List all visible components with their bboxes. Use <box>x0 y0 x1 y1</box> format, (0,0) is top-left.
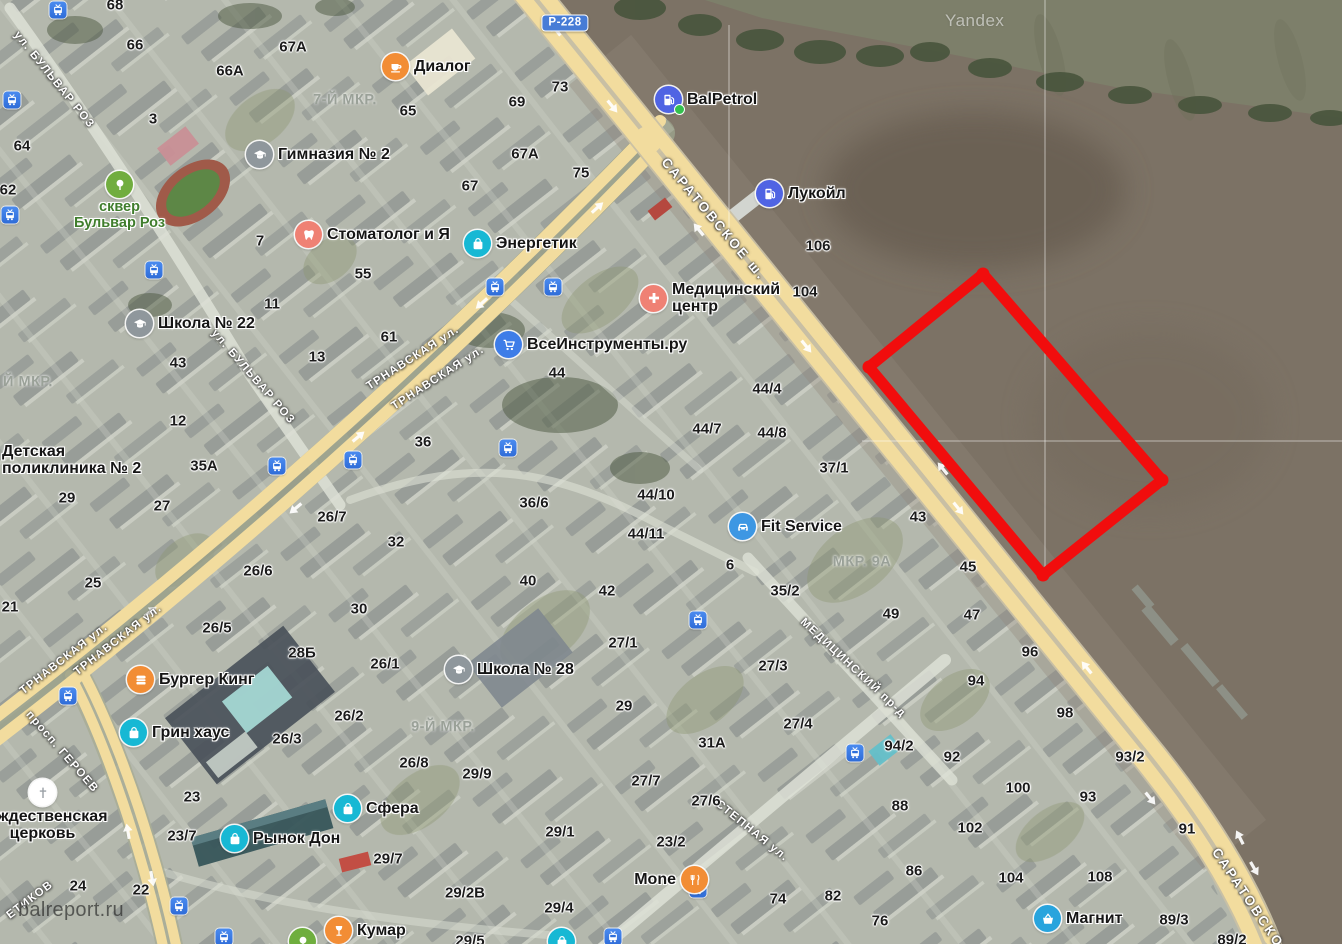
building-number: 29/1 <box>545 824 574 841</box>
poi-shop-unnamed[interactable] <box>548 928 575 944</box>
building-number: 62 <box>0 182 16 199</box>
building-number: 36 <box>415 434 432 451</box>
building-number: 27/1 <box>608 635 637 652</box>
building-number: 44/11 <box>628 526 665 543</box>
poi-fit-service[interactable]: Fit Service <box>729 513 842 540</box>
building-number: 29/9 <box>462 766 491 783</box>
poi-balpetrol[interactable]: BalPetrol <box>655 86 757 113</box>
poi-label: BalPetrol <box>687 91 757 108</box>
shopping-bag-icon[interactable] <box>334 795 361 822</box>
building-number: 29/4 <box>544 900 573 917</box>
building-number: 74 <box>770 891 787 908</box>
building-number: 55 <box>355 266 372 283</box>
building-number: 35/2 <box>770 583 799 600</box>
building-number: 65 <box>400 103 417 120</box>
poi-label: Рынок Дон <box>253 830 340 847</box>
poi-vseinstrumenty[interactable]: ВсеИнструменты.ру <box>495 331 687 358</box>
poi-dialog[interactable]: Диалог <box>382 53 471 80</box>
building-number: 25 <box>85 575 102 592</box>
building-number: 94 <box>968 673 985 690</box>
district-label: Й МКР. <box>3 374 53 390</box>
building-number: 91 <box>1179 821 1196 838</box>
route-badge: Р-228 <box>541 15 588 32</box>
building-number: 88 <box>892 798 909 815</box>
poi-label: Кумар <box>357 922 406 939</box>
building-number: 27/4 <box>783 716 812 733</box>
building-number: 28Б <box>288 645 315 662</box>
poi-park-bulvar-roz[interactable]: скверБульвар Роз <box>106 171 133 231</box>
building-number: 29/2В <box>445 885 485 902</box>
district-label: 7-Й МКР. <box>313 92 377 108</box>
building-number: 44/8 <box>757 425 786 442</box>
building-number: 36/6 <box>519 495 548 512</box>
building-number: 102 <box>957 820 982 837</box>
building-number: 21 <box>2 599 19 616</box>
building-number: 11 <box>264 296 280 313</box>
poi-school-22[interactable]: Школа № 22 <box>126 310 255 337</box>
shopping-bag-icon[interactable] <box>221 825 248 852</box>
building-number: 27 <box>154 498 171 515</box>
watermark-balreport: balreport.ru <box>18 899 124 922</box>
basket-icon[interactable] <box>1034 905 1061 932</box>
poi-med-center[interactable]: Медицинскийцентр <box>640 281 780 316</box>
poi-label: скверБульвар Роз <box>35 200 205 231</box>
building-number: 24 <box>70 878 87 895</box>
building-number: 29/7 <box>373 851 402 868</box>
building-number: 13 <box>309 349 326 366</box>
building-number: 44 <box>549 365 566 382</box>
poi-church[interactable]: Рождественскаяцерковь <box>29 779 56 843</box>
building-number: 23/7 <box>167 828 196 845</box>
building-number: 6 <box>726 557 734 574</box>
poi-sfera[interactable]: Сфера <box>334 795 419 822</box>
wine-glass-icon[interactable] <box>325 917 352 944</box>
cafe-icon[interactable] <box>382 53 409 80</box>
poi-label: Fit Service <box>761 518 842 535</box>
building-number: 44/7 <box>692 421 721 438</box>
graduation-cap-icon[interactable] <box>246 141 273 168</box>
building-number: 49 <box>883 606 900 623</box>
building-number: 61 <box>381 329 398 346</box>
shopping-bag-icon[interactable] <box>548 928 575 944</box>
building-number: 37/1 <box>819 460 848 477</box>
building-number: 7 <box>256 233 264 250</box>
transit-stop-icon[interactable] <box>60 688 77 705</box>
building-number: 42 <box>599 583 616 600</box>
building-number: 108 <box>1087 869 1112 886</box>
tree-icon[interactable] <box>106 171 133 198</box>
car-icon[interactable] <box>729 513 756 540</box>
building-number: 26/6 <box>243 563 272 580</box>
poi-stomatolog[interactable]: Стоматолог и Я <box>295 221 450 248</box>
building-number: 44/4 <box>752 381 781 398</box>
poi-label: Гимназия № 2 <box>278 146 390 163</box>
building-number: 92 <box>944 749 961 766</box>
fuel-icon[interactable] <box>756 180 783 207</box>
district-label: МКР. 9А <box>833 554 892 570</box>
poi-gymnasium-2[interactable]: Гимназия № 2 <box>246 141 390 168</box>
building-number: 35А <box>190 458 218 475</box>
poi-label: Рождественскаяцерковь <box>0 808 128 843</box>
building-number: 67А <box>511 146 539 163</box>
transit-stop-icon[interactable] <box>216 929 233 944</box>
building-number: 26/3 <box>272 731 301 748</box>
transit-stop-icon[interactable] <box>500 440 517 457</box>
transit-stop-icon[interactable] <box>545 279 562 296</box>
building-number: 22 <box>133 882 150 899</box>
building-number: 93 <box>1080 789 1097 806</box>
graduation-cap-icon[interactable] <box>445 656 472 683</box>
poi-green-house[interactable]: Грин хаус <box>120 719 229 746</box>
tooth-icon[interactable] <box>295 221 322 248</box>
map-canvas[interactable]: ул. БУЛЬВАР РОЗул. БУЛЬВАР РОЗСАРАТОВСКО… <box>0 0 1342 944</box>
poi-energetik[interactable]: Энергетик <box>464 230 577 257</box>
building-number: 76 <box>872 913 889 930</box>
building-number: 32 <box>388 534 405 551</box>
watermark-yandex: Yandex <box>945 11 1004 31</box>
poi-burger-king[interactable]: Бургер Кинг <box>127 666 254 693</box>
poi-label: Стоматолог и Я <box>327 226 450 243</box>
building-number: 89/3 <box>1159 912 1188 929</box>
building-number: 66А <box>216 63 244 80</box>
transit-stop-icon[interactable] <box>269 458 286 475</box>
poi-label: Mone <box>634 871 676 888</box>
building-number: 73 <box>552 79 569 96</box>
poi-label: Детскаяполиклиника № 2 <box>2 443 141 478</box>
building-number: 26/5 <box>202 620 231 637</box>
transit-stop-icon[interactable] <box>50 2 67 19</box>
fuel-icon[interactable] <box>655 86 682 113</box>
building-number: 30 <box>351 601 368 618</box>
building-number: 100 <box>1005 780 1030 797</box>
poi-lukoil[interactable]: Лукойл <box>756 180 846 207</box>
poi-label: Медицинскийцентр <box>672 281 780 316</box>
poi-label: Бургер Кинг <box>159 671 254 688</box>
building-number: 86 <box>906 863 923 880</box>
shopping-bag-icon[interactable] <box>464 230 491 257</box>
poi-label: Грин хаус <box>152 724 229 741</box>
building-number: 106 <box>805 238 830 255</box>
building-number: 40 <box>520 573 537 590</box>
building-number: 26/8 <box>399 755 428 772</box>
building-number: 75 <box>573 165 590 182</box>
building-number: 66 <box>127 37 144 54</box>
poi-mone[interactable]: Mone <box>634 866 708 893</box>
building-number: 26/7 <box>317 509 346 526</box>
burger-icon[interactable] <box>127 666 154 693</box>
poi-label: ВсеИнструменты.ру <box>527 336 687 353</box>
building-number: 29 <box>616 698 633 715</box>
open-status-dot <box>674 104 685 115</box>
poi-label: Школа № 22 <box>158 315 255 332</box>
building-number: 27/7 <box>631 773 660 790</box>
graduation-cap-icon[interactable] <box>126 310 153 337</box>
restaurant-icon[interactable] <box>681 866 708 893</box>
transit-stop-icon[interactable] <box>171 898 188 915</box>
building-number: 29/5 <box>455 933 484 944</box>
building-number: 26/1 <box>370 656 399 673</box>
building-number: 93/2 <box>1115 749 1144 766</box>
building-number: 12 <box>170 413 187 430</box>
medical-cross-icon[interactable] <box>640 285 667 312</box>
transit-stop-icon[interactable] <box>487 279 504 296</box>
poi-school-28[interactable]: Школа № 28 <box>445 656 574 683</box>
church-cross-icon[interactable] <box>29 779 56 806</box>
building-number: 26/2 <box>334 708 363 725</box>
poi-label: Сфера <box>366 800 419 817</box>
poi-label: Лукойл <box>788 185 846 202</box>
building-number: 23 <box>184 789 201 806</box>
building-number: 104 <box>792 284 817 301</box>
transit-stop-icon[interactable] <box>690 612 707 629</box>
poi-kumar[interactable]: Кумар <box>325 917 406 944</box>
building-number: 67А <box>279 39 307 56</box>
building-number: 64 <box>14 138 31 155</box>
building-number: 104 <box>998 870 1023 887</box>
district-label: 9-Й МКР. <box>411 719 475 735</box>
poi-label: Энергетик <box>496 235 577 252</box>
building-number: 29 <box>59 490 76 507</box>
poi-park-unnamed[interactable] <box>289 928 316 944</box>
building-number: 27/3 <box>758 658 787 675</box>
building-number: 43 <box>910 509 927 526</box>
building-number: 3 <box>149 111 157 128</box>
poi-label: Диалог <box>414 58 471 75</box>
transit-stop-icon[interactable] <box>847 745 864 762</box>
building-number: 94/2 <box>884 738 913 755</box>
poi-polyclinic[interactable]: Детскаяполиклиника № 2 <box>2 443 141 478</box>
transit-stop-icon[interactable] <box>605 929 622 944</box>
tree-icon[interactable] <box>289 928 316 944</box>
poi-label: Магнит <box>1066 910 1122 927</box>
building-number: 27/6 <box>691 793 720 810</box>
building-number: 96 <box>1022 644 1039 661</box>
poi-label: Школа № 28 <box>477 661 574 678</box>
building-number: 44/10 <box>637 487 675 504</box>
building-number: 82 <box>825 888 842 905</box>
building-number: 23/2 <box>656 834 685 851</box>
transit-stop-icon[interactable] <box>146 262 163 279</box>
building-number: 89/2 <box>1217 932 1246 944</box>
building-number: 47 <box>964 607 981 624</box>
building-number: 69 <box>509 94 526 111</box>
shopping-cart-icon[interactable] <box>495 331 522 358</box>
building-number: 68 <box>107 0 124 14</box>
shopping-bag-icon[interactable] <box>120 719 147 746</box>
building-number: 45 <box>960 559 977 576</box>
building-number: 67 <box>462 178 479 195</box>
building-number: 31А <box>698 735 726 752</box>
transit-stop-icon[interactable] <box>2 207 19 224</box>
transit-stop-icon[interactable] <box>345 452 362 469</box>
poi-magnit[interactable]: Магнит <box>1034 905 1122 932</box>
transit-stop-icon[interactable] <box>4 92 21 109</box>
poi-rynok-don[interactable]: Рынок Дон <box>221 825 340 852</box>
building-number: 43 <box>170 355 187 372</box>
building-number: 98 <box>1057 705 1074 722</box>
